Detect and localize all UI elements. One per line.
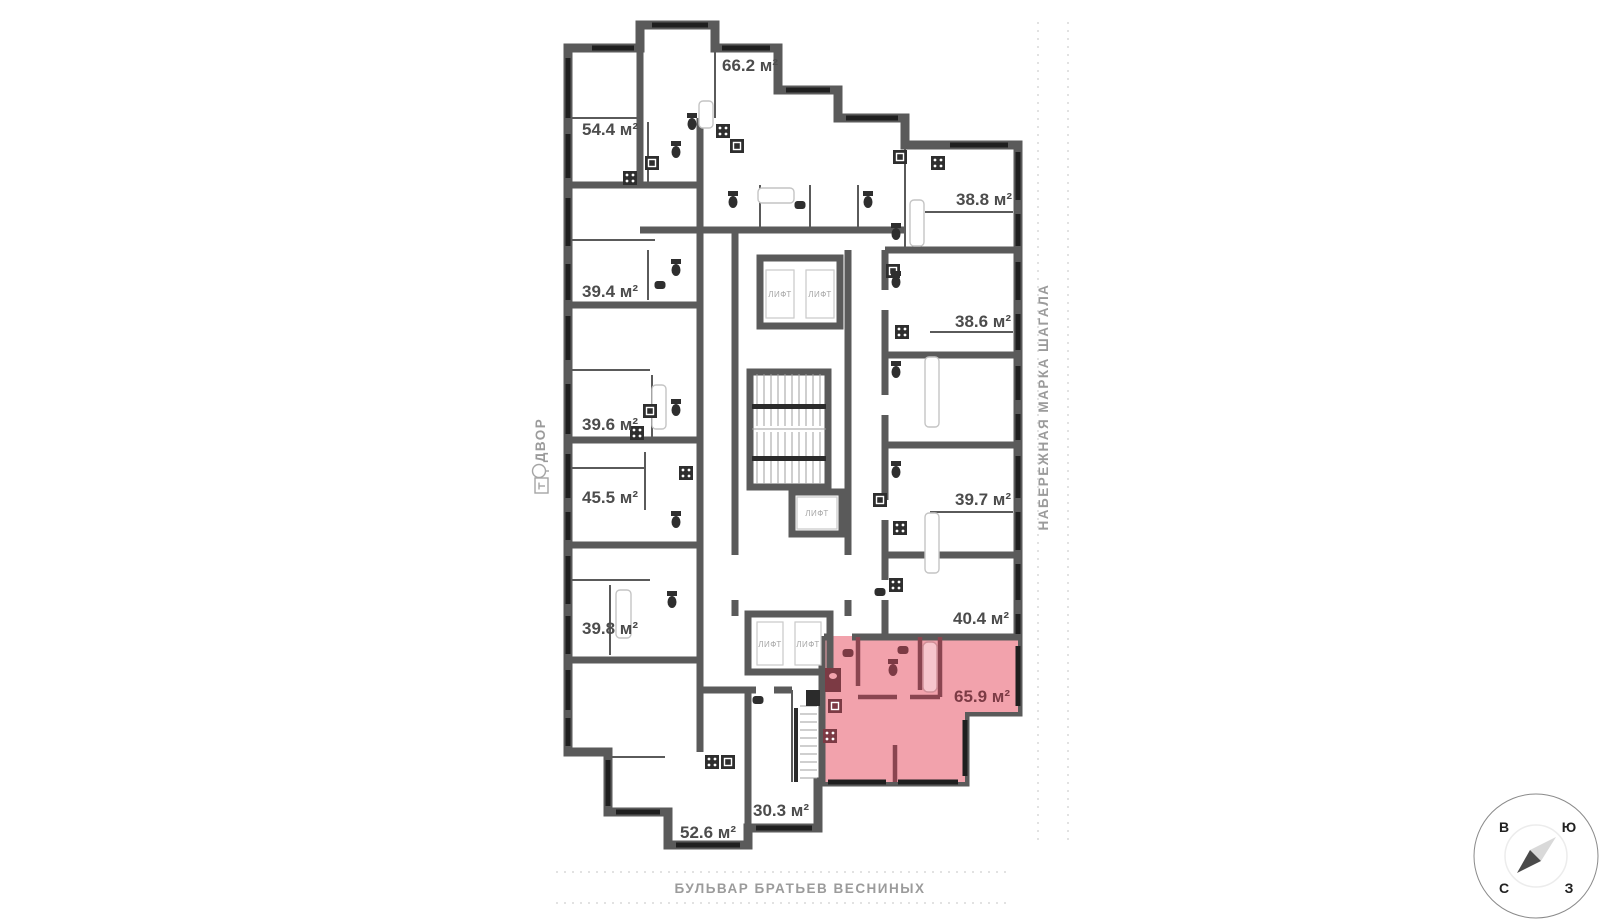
compass: В Ю С З xyxy=(1474,794,1598,918)
room-area-label[interactable]: 45.5 м² xyxy=(582,488,638,507)
floor-plan-page: ЛИФТ ЛИФТ ЛИФТ ЛИФТ ЛИФТ xyxy=(0,0,1600,920)
room-area-label[interactable]: 39.8 м² xyxy=(582,619,638,638)
courtyard-icon xyxy=(533,465,550,494)
room-area-label[interactable]: 40.4 м² xyxy=(953,609,1009,628)
compass-north: С xyxy=(1499,880,1509,896)
elevator-label: ЛИФТ xyxy=(758,640,782,649)
compass-south: Ю xyxy=(1562,819,1576,835)
room-area-label[interactable]: 52.6 м² xyxy=(680,823,736,842)
room-area-label[interactable]: 66.2 м² xyxy=(722,56,778,75)
street-bottom-label: БУЛЬВАР БРАТЬЕВ ВЕСНИНЫХ xyxy=(675,881,926,896)
room-area-label[interactable]: 54.4 м² xyxy=(582,120,638,139)
street-right-label: НАБЕРЕЖНАЯ МАРКА ШАГАЛА xyxy=(1036,284,1051,531)
room-area-label[interactable]: 39.7 м² xyxy=(955,490,1011,509)
room-area-label[interactable]: 39.4 м² xyxy=(582,282,638,301)
room-area-label[interactable]: 38.8 м² xyxy=(956,190,1012,209)
compass-east: В xyxy=(1499,819,1509,835)
elevator-label: ЛИФТ xyxy=(768,290,792,299)
room-area-label[interactable]: 30.3 м² xyxy=(753,801,809,820)
elevator-label: ЛИФТ xyxy=(805,509,829,518)
compass-west: З xyxy=(1565,880,1574,896)
street-left-label: ДВОР xyxy=(533,418,548,463)
room-area-label[interactable]: 39.6 м² xyxy=(582,415,638,434)
room-area-label[interactable]: 38.6 м² xyxy=(955,312,1011,331)
room-area-label-selected[interactable]: 65.9 м² xyxy=(954,687,1010,706)
elevator-label: ЛИФТ xyxy=(796,640,820,649)
elevator-label: ЛИФТ xyxy=(808,290,832,299)
floor-plan: ЛИФТ ЛИФТ ЛИФТ ЛИФТ ЛИФТ xyxy=(0,0,1600,920)
